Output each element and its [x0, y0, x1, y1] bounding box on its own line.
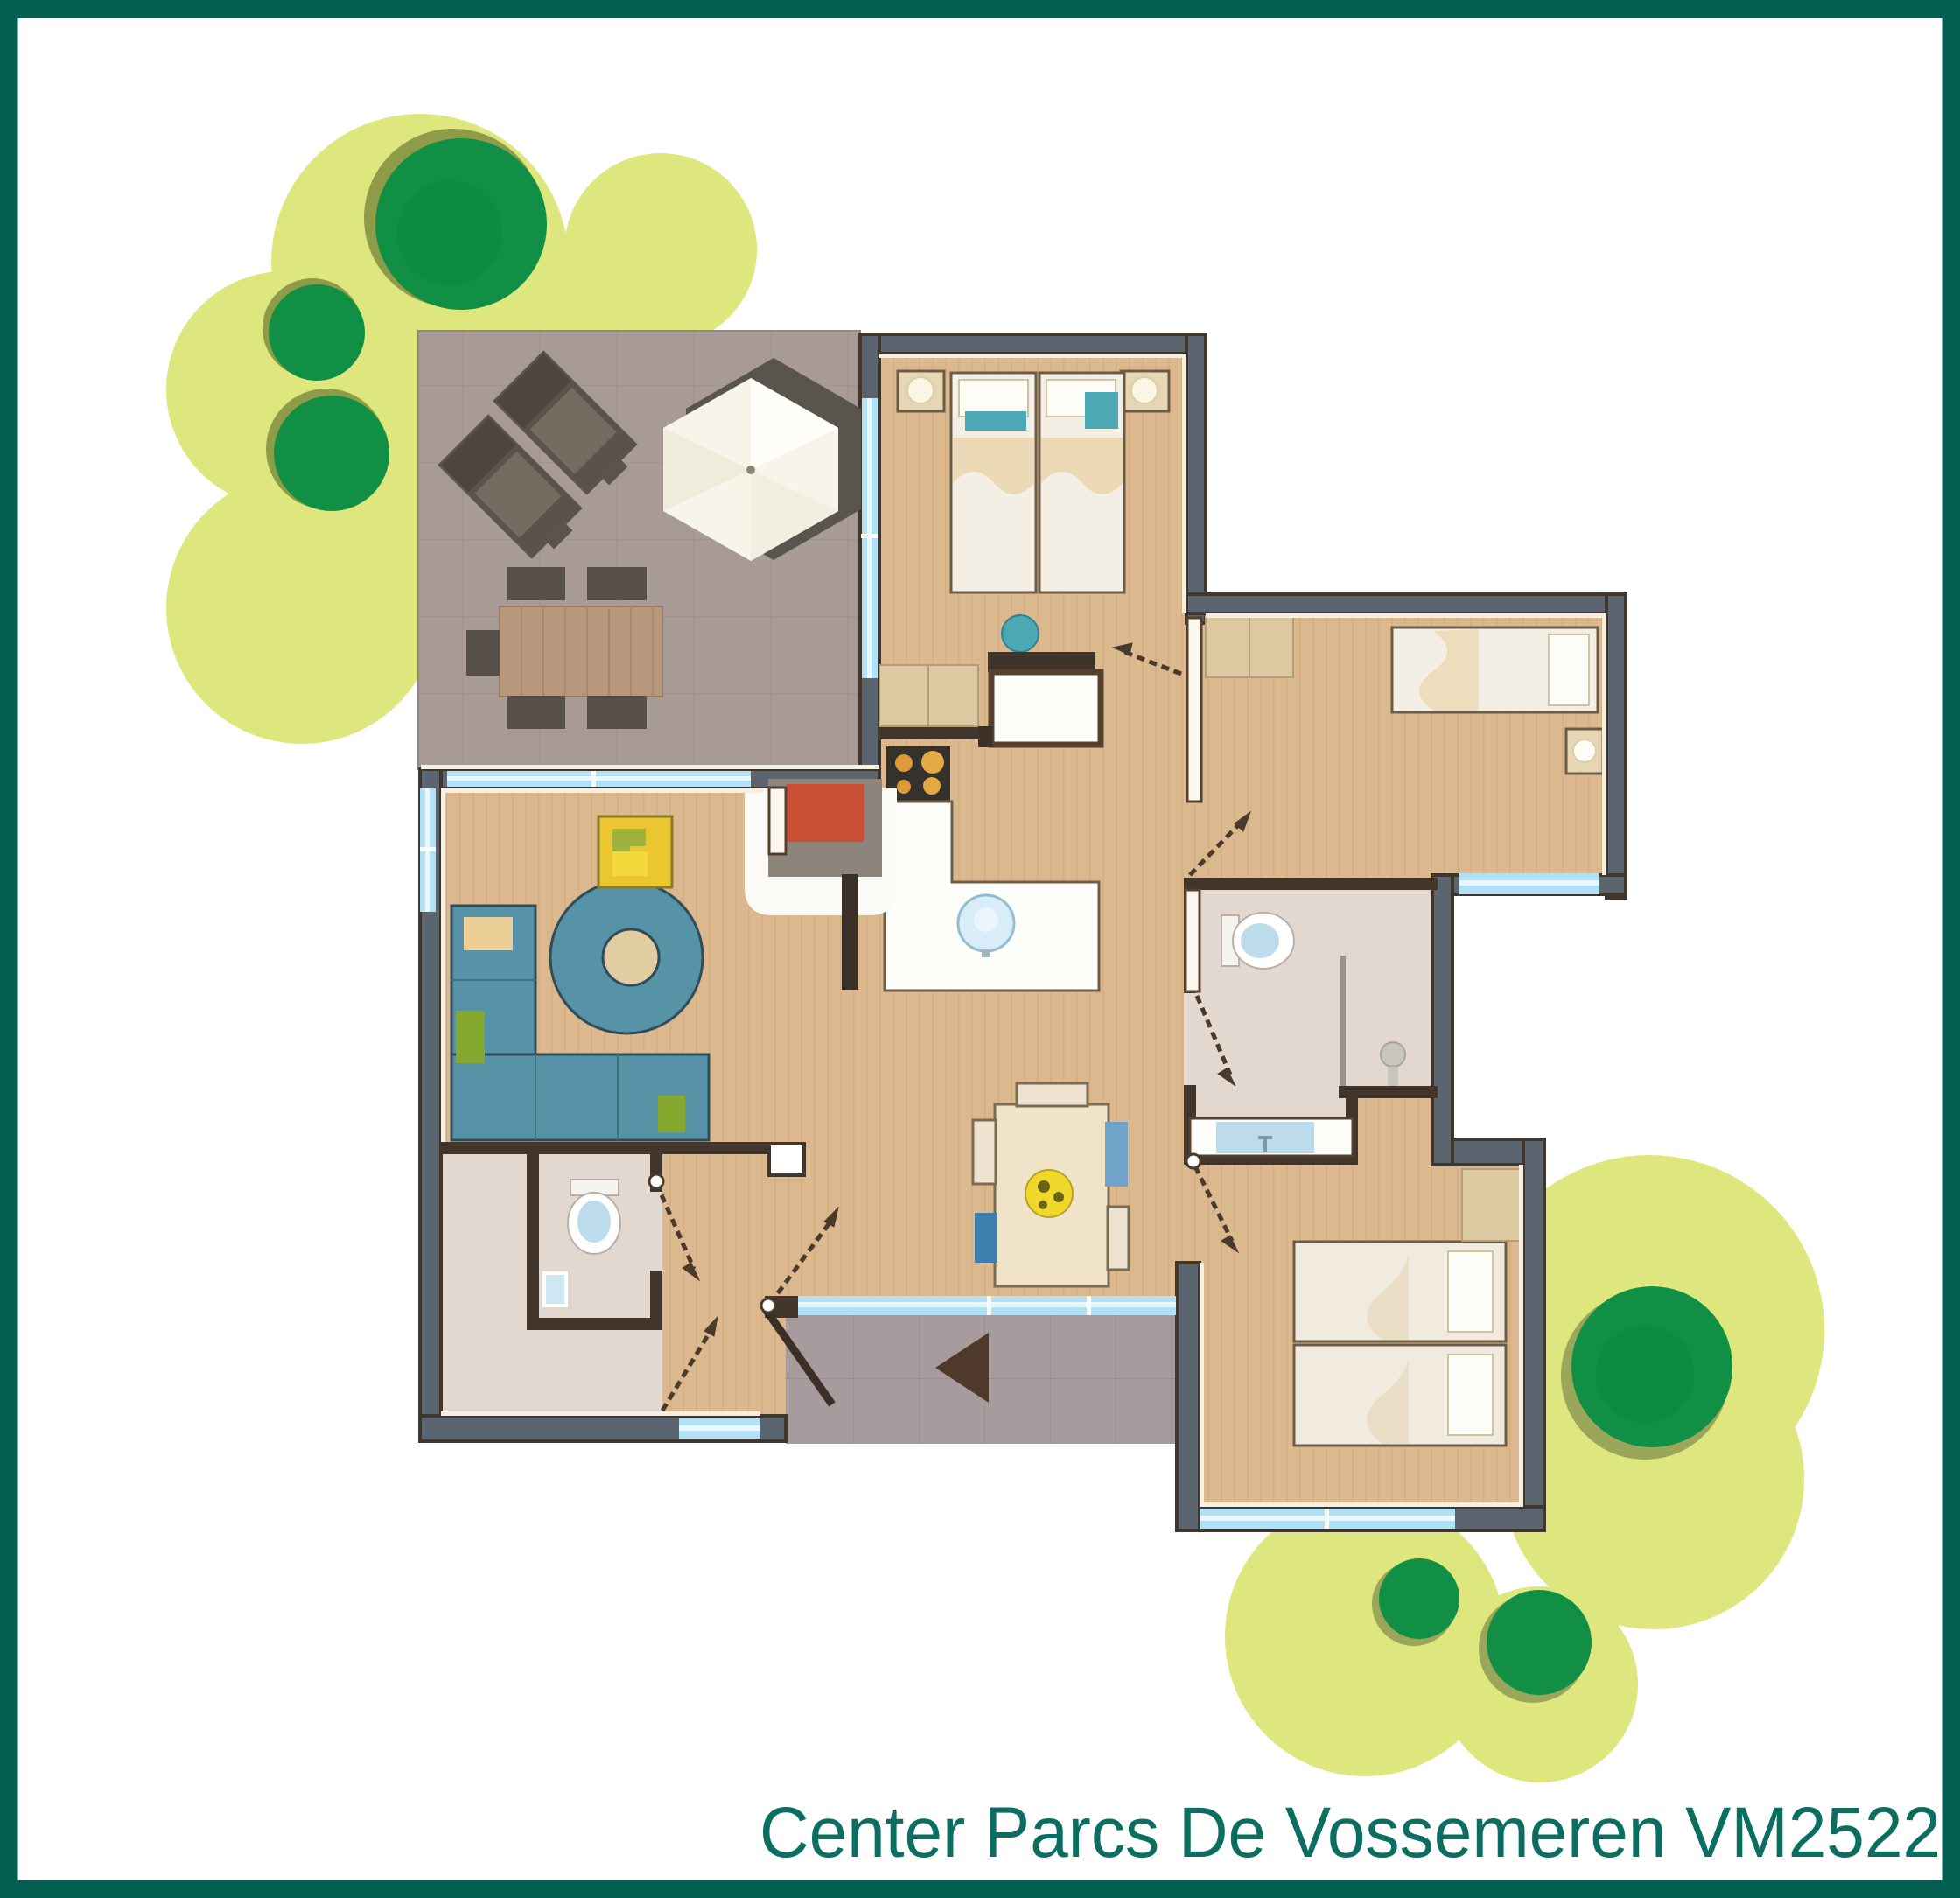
svg-text:Center Parcs De Vossemeren VM2: Center Parcs De Vossemeren VM2522 — [759, 1793, 1941, 1873]
